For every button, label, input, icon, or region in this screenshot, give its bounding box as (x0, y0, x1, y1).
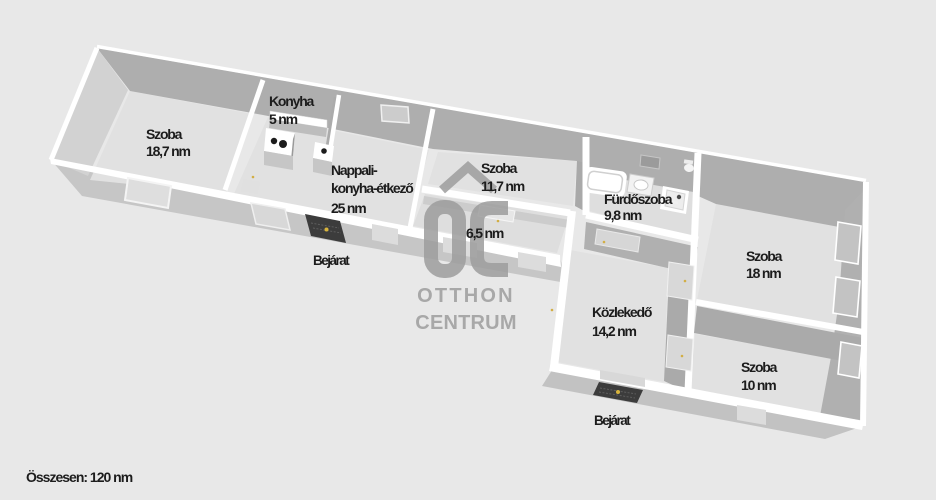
svg-text:18,7 nm: 18,7 nm (146, 143, 190, 159)
svg-text:5 nm: 5 nm (269, 111, 298, 127)
svg-text:Konyha: Konyha (269, 93, 315, 109)
svg-text:Fürdőszoba: Fürdőszoba (604, 191, 673, 207)
svg-text:Közlekedő: Közlekedő (592, 304, 652, 320)
svg-text:6,5 nm: 6,5 nm (466, 225, 504, 241)
svg-text:10 nm: 10 nm (741, 377, 776, 393)
svg-text:OTTHON: OTTHON (417, 285, 515, 307)
svg-text:konyha-étkező: konyha-étkező (331, 180, 413, 196)
svg-text:Szoba: Szoba (481, 160, 518, 176)
svg-text:Szoba: Szoba (746, 248, 783, 264)
svg-text:14,2 nm: 14,2 nm (592, 323, 636, 339)
svg-text:CENTRUM: CENTRUM (415, 312, 516, 334)
svg-text:Bejárat: Bejárat (594, 413, 631, 428)
svg-text:Nappali-: Nappali- (331, 162, 378, 178)
svg-text:Összesen: 120 nm: Összesen: 120 nm (26, 469, 133, 485)
svg-text:Szoba: Szoba (146, 126, 183, 142)
svg-text:9,8 nm: 9,8 nm (604, 207, 642, 223)
svg-text:25 nm: 25 nm (331, 200, 366, 216)
svg-text:11,7 nm: 11,7 nm (481, 178, 525, 194)
svg-text:Szoba: Szoba (741, 359, 778, 375)
svg-text:18 nm: 18 nm (746, 265, 781, 281)
svg-text:Bejárat: Bejárat (313, 253, 350, 268)
